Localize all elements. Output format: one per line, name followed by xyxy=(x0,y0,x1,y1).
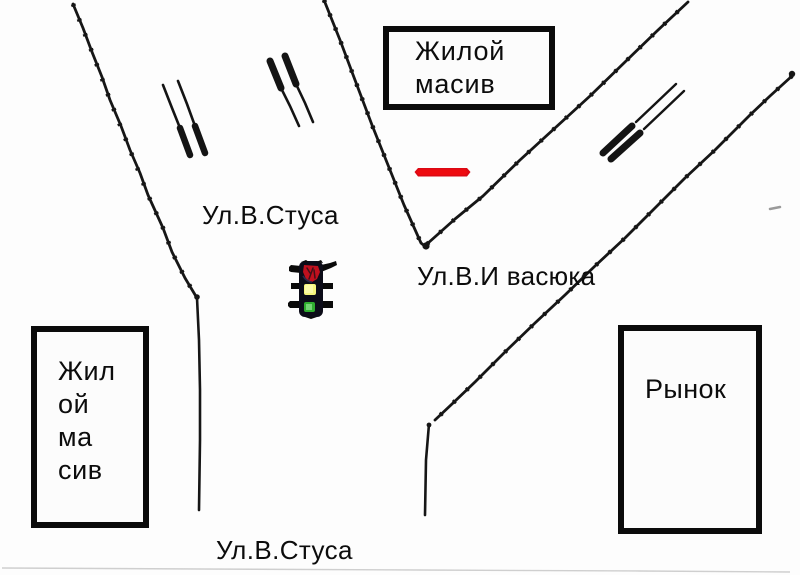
svg-text:Ул.В.И васюка: Ул.В.И васюка xyxy=(417,261,596,291)
svg-text:ма: ма xyxy=(58,422,93,452)
svg-text:Ул.В.Стуса: Ул.В.Стуса xyxy=(202,200,339,230)
svg-text:сив: сив xyxy=(58,455,103,485)
svg-text:Рынок: Рынок xyxy=(645,374,726,404)
svg-text:Жилой: Жилой xyxy=(415,36,505,66)
svg-text:ой: ой xyxy=(58,389,89,419)
svg-text:Ул.В.Стуса: Ул.В.Стуса xyxy=(216,535,353,565)
svg-text:Жил: Жил xyxy=(58,356,116,386)
svg-text:масив: масив xyxy=(415,69,496,99)
